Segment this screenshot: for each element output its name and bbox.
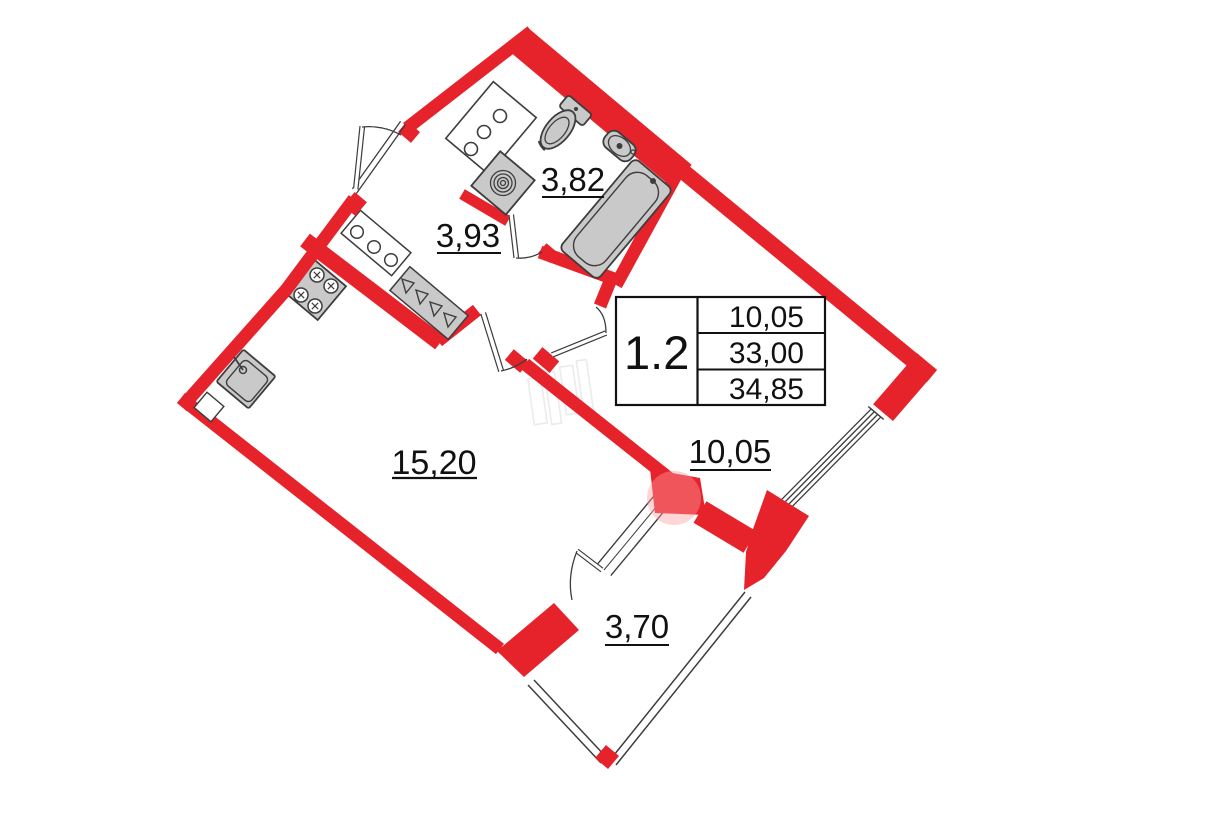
svg-text:15,20: 15,20 — [391, 444, 476, 482]
svg-text:3,93: 3,93 — [436, 217, 500, 254]
svg-text:1.2: 1.2 — [624, 326, 689, 379]
svg-text:3,82: 3,82 — [541, 161, 605, 198]
svg-text:10,05: 10,05 — [729, 301, 804, 334]
svg-text:34,85: 34,85 — [729, 373, 804, 406]
svg-text:3,70: 3,70 — [605, 608, 669, 645]
svg-text:33,00: 33,00 — [729, 337, 804, 370]
svg-text:10,05: 10,05 — [689, 433, 772, 470]
